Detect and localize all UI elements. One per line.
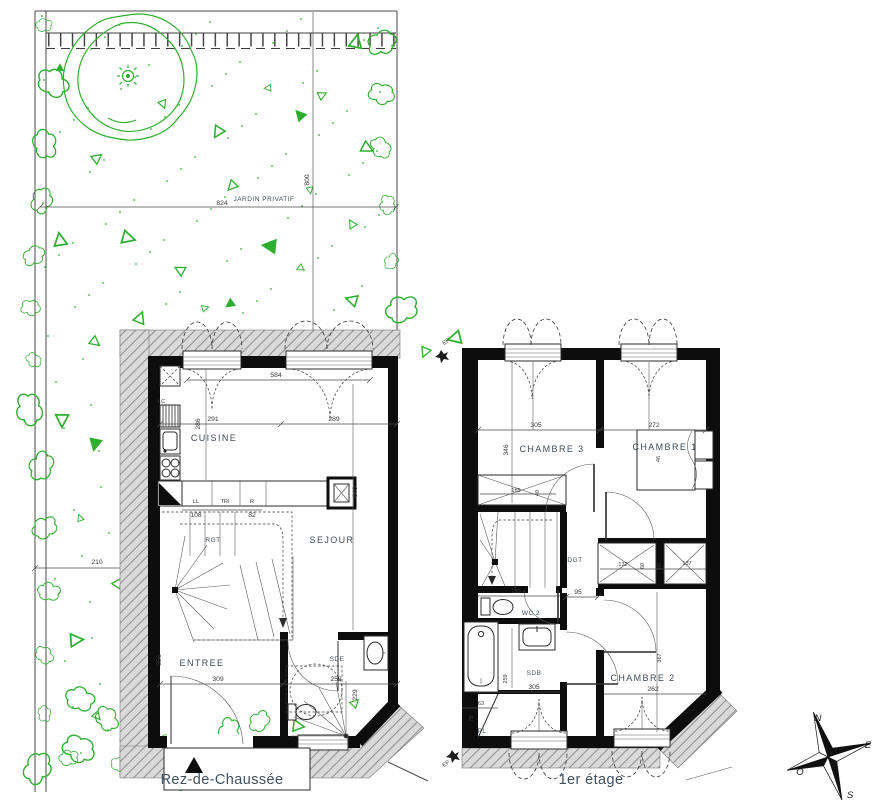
bush-icon bbox=[381, 251, 401, 272]
stair-closet bbox=[478, 475, 566, 505]
grass-dot bbox=[64, 660, 66, 662]
bush-icon bbox=[36, 19, 52, 32]
bush-icon bbox=[28, 513, 60, 543]
grass-dot bbox=[107, 729, 109, 731]
floor-plan-page: 824 JARDIN PRIVATIF 800 210 bbox=[0, 0, 885, 800]
garden-depth-dim: 800 bbox=[304, 174, 311, 186]
shrub-triangle-icon bbox=[349, 34, 364, 49]
first-window-ch3 bbox=[505, 344, 561, 361]
grass-dot bbox=[346, 110, 348, 112]
shrub-triangle-icon bbox=[317, 89, 328, 100]
dim-storage1: 132 bbox=[618, 562, 627, 568]
grass-dot bbox=[316, 70, 318, 72]
first-window-ch2 bbox=[614, 729, 670, 747]
grass-dot bbox=[377, 27, 379, 29]
dim-ch3-w: 305 bbox=[530, 422, 542, 429]
grass-dot bbox=[364, 226, 366, 228]
shrub-triangle-icon bbox=[262, 239, 276, 253]
dim-sejour-w: 289 bbox=[328, 416, 340, 423]
compass-east-label: E bbox=[865, 740, 872, 751]
dim-window-span: 584 bbox=[270, 372, 282, 379]
grass-dot bbox=[240, 248, 242, 250]
shrub-triangle-icon bbox=[158, 99, 169, 109]
ground-window-sejour bbox=[286, 351, 372, 369]
grass-dot bbox=[41, 15, 43, 17]
grass-dot bbox=[317, 257, 319, 259]
grass-dot bbox=[102, 282, 104, 284]
cuisine-label: CUISINE bbox=[191, 433, 237, 443]
shrub-triangle-icon bbox=[52, 232, 67, 246]
shrub-triangle-icon bbox=[293, 108, 307, 122]
toilet-icon bbox=[481, 598, 513, 615]
grass-dot bbox=[376, 150, 378, 152]
chambre2-label: CHAMBRE 2 bbox=[610, 673, 675, 683]
grass-dot bbox=[363, 39, 365, 41]
grass-dot bbox=[347, 297, 349, 299]
shrub-triangle-icon bbox=[133, 310, 148, 324]
bush-icon bbox=[32, 642, 56, 667]
grass-dot bbox=[255, 113, 257, 115]
grass-dot bbox=[98, 450, 100, 452]
rgt-label: RGT bbox=[205, 537, 220, 544]
grass-dot bbox=[120, 88, 122, 90]
grass-dot bbox=[257, 177, 259, 179]
bush-icon bbox=[366, 81, 396, 107]
bush-icon bbox=[37, 705, 51, 723]
chambre3-label: CHAMBRE 3 bbox=[519, 444, 584, 454]
grass-dot bbox=[47, 335, 49, 337]
grass-dot bbox=[164, 116, 166, 118]
grass-dot bbox=[242, 312, 244, 314]
grass-dot bbox=[285, 153, 287, 155]
grass-dot bbox=[361, 285, 363, 287]
shrub-triangle-icon bbox=[224, 299, 235, 310]
shrub-triangle-icon bbox=[295, 264, 304, 273]
bush-icon bbox=[32, 62, 73, 102]
ground-walls bbox=[148, 356, 398, 750]
grass-dot bbox=[287, 217, 289, 219]
grass-dot bbox=[74, 306, 76, 308]
dim-pl-w: 63 bbox=[478, 701, 484, 707]
bush-icon bbox=[13, 391, 44, 428]
grass-dot bbox=[59, 131, 61, 133]
grass-dot bbox=[211, 85, 213, 87]
grass-dot bbox=[134, 76, 136, 78]
grass-dot bbox=[209, 21, 211, 23]
exterior-hatch bbox=[120, 330, 424, 778]
fence bbox=[46, 33, 396, 49]
grass-dot bbox=[43, 79, 45, 81]
grass-dot bbox=[58, 254, 60, 256]
grass-dot bbox=[195, 33, 197, 35]
downspout-icon bbox=[435, 350, 449, 363]
fridge-icon bbox=[328, 478, 355, 508]
first-window-ch1 bbox=[621, 344, 677, 361]
grass-dot bbox=[148, 64, 150, 66]
bush-icon bbox=[245, 707, 274, 736]
ground-dimensions: 584 291 289 286 649 309 258 229 356 bbox=[156, 369, 400, 701]
grass-dot bbox=[332, 122, 334, 124]
bush-icon bbox=[30, 127, 60, 161]
grass-dot bbox=[333, 309, 335, 311]
dim-sde-w: 258 bbox=[330, 676, 342, 683]
garden-width-dim: 824 bbox=[216, 200, 228, 207]
dim-ch3-h: 346 bbox=[503, 444, 510, 456]
dim-cuisine-w: 291 bbox=[207, 416, 219, 423]
shrub-triangle-icon bbox=[121, 230, 137, 246]
grass-dot bbox=[270, 288, 272, 290]
grass-dot bbox=[318, 134, 320, 136]
sejour-label: SEJOUR bbox=[310, 535, 355, 545]
grass-dot bbox=[150, 128, 152, 130]
grass-dot bbox=[72, 706, 74, 708]
grass-dot bbox=[256, 300, 258, 302]
grass-dot bbox=[108, 532, 110, 534]
grass-dot bbox=[118, 24, 120, 26]
grass-dot bbox=[271, 165, 273, 167]
grass-dot bbox=[331, 245, 333, 247]
counter-dim-right: 82 bbox=[248, 512, 256, 519]
ground-floor-title: Rez-de-Chaussée bbox=[161, 772, 284, 788]
shrub-triangle-icon bbox=[293, 720, 305, 733]
sink-icon bbox=[160, 429, 180, 454]
grass-dot bbox=[300, 18, 302, 20]
staircase-first bbox=[480, 512, 557, 588]
staircase-ground: RGT bbox=[162, 512, 293, 642]
washbasin-icon bbox=[364, 636, 388, 670]
grass-dot bbox=[133, 199, 135, 201]
shrub-triangle-icon bbox=[264, 84, 271, 91]
first-floor-title: 1er étage bbox=[559, 772, 624, 788]
tri-label: TRI bbox=[220, 499, 229, 505]
grass-dot bbox=[272, 42, 274, 44]
washbasin-icon bbox=[519, 624, 555, 650]
grass-dot bbox=[82, 358, 84, 360]
garden-label: JARDIN PRIVATIF bbox=[233, 196, 294, 203]
grass-dot bbox=[90, 404, 92, 406]
shrub-triangle-icon bbox=[346, 218, 357, 229]
grass-dot bbox=[315, 193, 317, 195]
bathtub-icon bbox=[464, 622, 498, 692]
grass-dot bbox=[80, 752, 82, 754]
grass-dot bbox=[286, 30, 288, 32]
grass-dot bbox=[194, 156, 196, 158]
grass-dot bbox=[181, 45, 183, 47]
grass-dot bbox=[72, 242, 74, 244]
grass-dot bbox=[303, 269, 305, 271]
dim-ch1-w: 272 bbox=[648, 422, 660, 429]
dim-cuisine-h: 286 bbox=[195, 418, 202, 430]
dim-sdb-h: 259 bbox=[503, 674, 509, 683]
grass-dot bbox=[104, 36, 106, 38]
grass-dot bbox=[226, 260, 228, 262]
bush-icon bbox=[382, 292, 421, 326]
grass-dot bbox=[42, 202, 44, 204]
grass-dot bbox=[362, 162, 364, 164]
bush-icon bbox=[20, 299, 41, 316]
compass-rose: N E O S bbox=[773, 698, 885, 800]
dim-closet-d: 40 bbox=[535, 490, 541, 496]
exterior-hatch bbox=[462, 748, 660, 768]
grass-dot bbox=[100, 486, 102, 488]
downspout-marker-bottom: EP bbox=[442, 750, 460, 769]
grass-dot bbox=[99, 683, 101, 685]
bush-icon bbox=[28, 185, 56, 217]
grass-dot bbox=[87, 107, 89, 109]
bush-icon bbox=[91, 702, 122, 735]
bush-icon bbox=[36, 581, 62, 602]
dim-entree-w: 309 bbox=[212, 676, 224, 683]
grass-dot bbox=[55, 381, 57, 383]
corner-cabinet-icon bbox=[158, 481, 182, 506]
pl-label: PL bbox=[478, 728, 487, 735]
dim-hall-w: 95 bbox=[574, 589, 582, 596]
bush-icon bbox=[19, 748, 58, 789]
bush-icon bbox=[380, 195, 396, 215]
dim-sde-h: 229 bbox=[352, 689, 359, 701]
dim-ch2-h: 367 bbox=[657, 653, 663, 662]
grass-dot bbox=[301, 205, 303, 207]
flower-icon bbox=[117, 65, 139, 87]
shrub-triangle-icon bbox=[344, 293, 358, 307]
grass-dot bbox=[241, 125, 243, 127]
bush-icon bbox=[59, 731, 99, 768]
compass-west-label: O bbox=[796, 767, 804, 778]
ground-window-kitchen bbox=[183, 351, 241, 369]
grass-dot bbox=[178, 104, 180, 106]
shrub-triangle-icon bbox=[55, 415, 68, 428]
dim-storage4: 137 bbox=[682, 561, 691, 567]
kitchen-counter: LC LL TRI R bbox=[158, 366, 355, 519]
stair-winders bbox=[175, 536, 230, 642]
grass-dot bbox=[227, 137, 229, 139]
shrub-triangle-icon bbox=[70, 633, 83, 647]
grass-dot bbox=[225, 73, 227, 75]
grass-dot bbox=[44, 266, 46, 268]
counter-row bbox=[182, 481, 328, 506]
grass-dot bbox=[180, 168, 182, 170]
dim-entree-h: 356 bbox=[156, 654, 163, 666]
grass-dot bbox=[88, 294, 90, 296]
grass-dot bbox=[91, 637, 93, 639]
bed-icon bbox=[637, 430, 713, 490]
grass-dot bbox=[166, 180, 168, 182]
grass-dot bbox=[89, 601, 91, 603]
grass-dot bbox=[196, 220, 198, 222]
shrub-triangle-icon bbox=[173, 263, 186, 276]
bush-icon bbox=[23, 350, 44, 370]
sdb-label: SDB bbox=[527, 670, 542, 677]
grass-dot bbox=[81, 555, 83, 557]
ground-floor-plan: LC LL TRI R bbox=[120, 321, 424, 790]
dim-storage2: 60 bbox=[640, 563, 646, 569]
grass-dot bbox=[239, 61, 241, 63]
grass-dot bbox=[135, 263, 137, 265]
bush-icon bbox=[62, 683, 97, 715]
grass-dot bbox=[119, 211, 121, 213]
grass-dot bbox=[163, 239, 165, 241]
shrub-triangle-icon bbox=[210, 125, 225, 140]
grass-dot bbox=[302, 82, 304, 84]
dim-sdb-w: 305 bbox=[528, 684, 540, 691]
grass-dot bbox=[224, 196, 226, 198]
grass-dot bbox=[179, 291, 181, 293]
turning-circle bbox=[290, 664, 342, 716]
dim-closet-w: 185 bbox=[511, 488, 520, 494]
first-window-sdb bbox=[511, 731, 567, 749]
entree-label: ENTREE bbox=[180, 658, 225, 668]
grass-dot bbox=[348, 174, 350, 176]
dim-stair-w: 180 bbox=[511, 589, 520, 595]
grass-dot bbox=[89, 171, 91, 173]
shrub-triangle-icon bbox=[89, 336, 103, 350]
grass-dot bbox=[165, 303, 167, 305]
dim-pl-d: 78 bbox=[469, 716, 475, 722]
stove-icon bbox=[160, 456, 180, 480]
shrub-triangle-icon bbox=[225, 180, 239, 194]
grass-dot bbox=[73, 119, 75, 121]
dim-storage3: 60 bbox=[657, 563, 663, 569]
shrub-triangle-icon bbox=[88, 438, 101, 451]
fridge-label: R bbox=[250, 499, 254, 505]
compass-south-label: S bbox=[847, 790, 854, 800]
floor-plan-drawing: 824 JARDIN PRIVATIF 800 210 bbox=[0, 0, 885, 800]
downspout-marker-top: EP bbox=[435, 337, 451, 363]
grass-dot bbox=[54, 578, 56, 580]
dim-ch1-h: 46 bbox=[656, 456, 662, 462]
grass-dot bbox=[63, 427, 65, 429]
sde-label: SDE bbox=[330, 656, 345, 663]
lc-label: LC bbox=[158, 399, 165, 405]
grass-dot bbox=[378, 214, 380, 216]
chambre1-label: CHAMBRE 1 bbox=[632, 442, 697, 452]
counter-dim-left: 108 bbox=[190, 512, 202, 519]
grass-dot bbox=[149, 251, 151, 253]
shrub-triangle-icon bbox=[202, 304, 210, 312]
grass-dot bbox=[57, 67, 59, 69]
shrub-triangle-icon bbox=[418, 347, 431, 360]
first-floor-plan: 63 78 PL CHAMBRE 3 CHAMBRE 1 CHAMBRE 2 D… bbox=[435, 319, 737, 788]
grass-dot bbox=[105, 223, 107, 225]
bush-icon bbox=[20, 242, 49, 269]
grass-dot bbox=[379, 91, 381, 93]
shrub-triangle-icon bbox=[91, 151, 104, 165]
grass-dot bbox=[90, 48, 92, 50]
grass-dot bbox=[103, 159, 105, 161]
grass-dot bbox=[210, 208, 212, 210]
dgt-label: DGT bbox=[567, 557, 582, 564]
dim-sejour-h: 649 bbox=[352, 486, 359, 498]
svg-text:EP: EP bbox=[442, 759, 452, 768]
washer-label: LL bbox=[193, 499, 199, 505]
shrub-triangle-icon bbox=[76, 513, 85, 521]
bush-icon bbox=[58, 749, 79, 767]
compass-north-label: N bbox=[815, 713, 822, 724]
wc-label: WC 2 bbox=[522, 610, 540, 617]
garden-side-dim: 210 bbox=[91, 559, 103, 566]
bush-icon bbox=[24, 448, 57, 484]
grass-dot bbox=[73, 509, 75, 511]
